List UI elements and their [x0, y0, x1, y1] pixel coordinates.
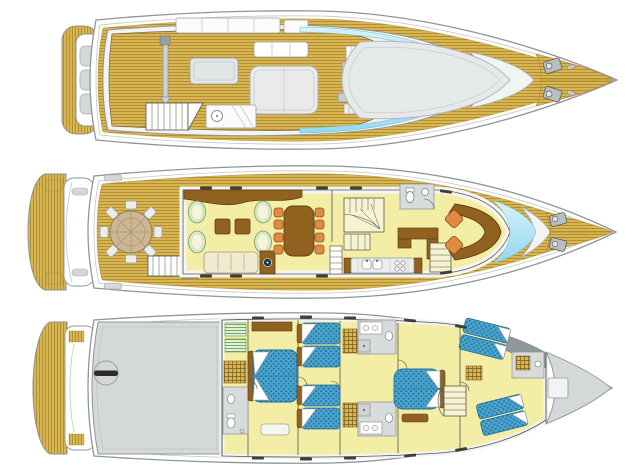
engine-room: [92, 322, 222, 454]
mid-bathroom-top: [358, 320, 396, 354]
single-bed: [297, 385, 340, 406]
chain-locker-hatch: [548, 378, 568, 398]
flybridge-table: [190, 58, 238, 84]
wardrobe: [343, 403, 357, 427]
coffee-table: [215, 219, 230, 234]
spiral-staircase: [344, 198, 384, 232]
sink: [535, 361, 541, 367]
guest-bathroom: [223, 387, 248, 434]
mid-bathroom-bottom: [358, 402, 396, 436]
swim-platform: [28, 174, 94, 290]
toilet: [406, 192, 414, 203]
pantry-counter: [398, 228, 438, 239]
tv-cabinet: [260, 251, 275, 274]
transom-step: [69, 331, 84, 342]
flybridge-deck-plan: [62, 11, 617, 149]
transom-step: [46, 180, 62, 191]
bench: [261, 424, 289, 435]
wardrobe: [466, 366, 482, 380]
stair-flight: [344, 234, 370, 250]
toilet: [386, 414, 393, 423]
wardrobe: [343, 329, 357, 353]
shelf-cabinet: [330, 246, 342, 274]
transom-step: [46, 273, 62, 284]
single-bed: [297, 408, 340, 429]
sun-lounger: [250, 66, 318, 114]
sofa: [204, 252, 258, 273]
transom-step: [69, 434, 84, 445]
aft-sun-lockers: [176, 18, 308, 33]
main-deck-plan: [28, 166, 616, 298]
cockpit-round-table: [110, 211, 152, 253]
day-head: [400, 184, 434, 209]
toilet: [227, 418, 235, 428]
wardrobe: [224, 361, 246, 383]
wardrobe: [516, 356, 530, 370]
engine-hatch-handle: [94, 371, 118, 377]
sink: [228, 395, 235, 404]
locker: [225, 323, 246, 336]
bench: [402, 414, 428, 422]
dining-table: [284, 206, 314, 256]
sink: [422, 189, 429, 196]
toilet: [386, 332, 393, 341]
crew-bathroom: [512, 352, 544, 378]
single-bed: [297, 323, 340, 344]
deck-plan-drawing: [0, 0, 640, 471]
lower-deck-plan: [33, 313, 612, 463]
settee-bench: [254, 42, 308, 57]
locker: [225, 339, 246, 352]
aft-guest-corridor: [223, 323, 248, 434]
galley-counter: [344, 258, 422, 273]
coffee-table: [235, 219, 250, 234]
single-bed: [297, 346, 340, 367]
yacht-deck-plans: [0, 0, 640, 471]
dresser: [252, 322, 292, 331]
wet-bar: [206, 105, 256, 128]
swim-platform: [33, 322, 95, 454]
